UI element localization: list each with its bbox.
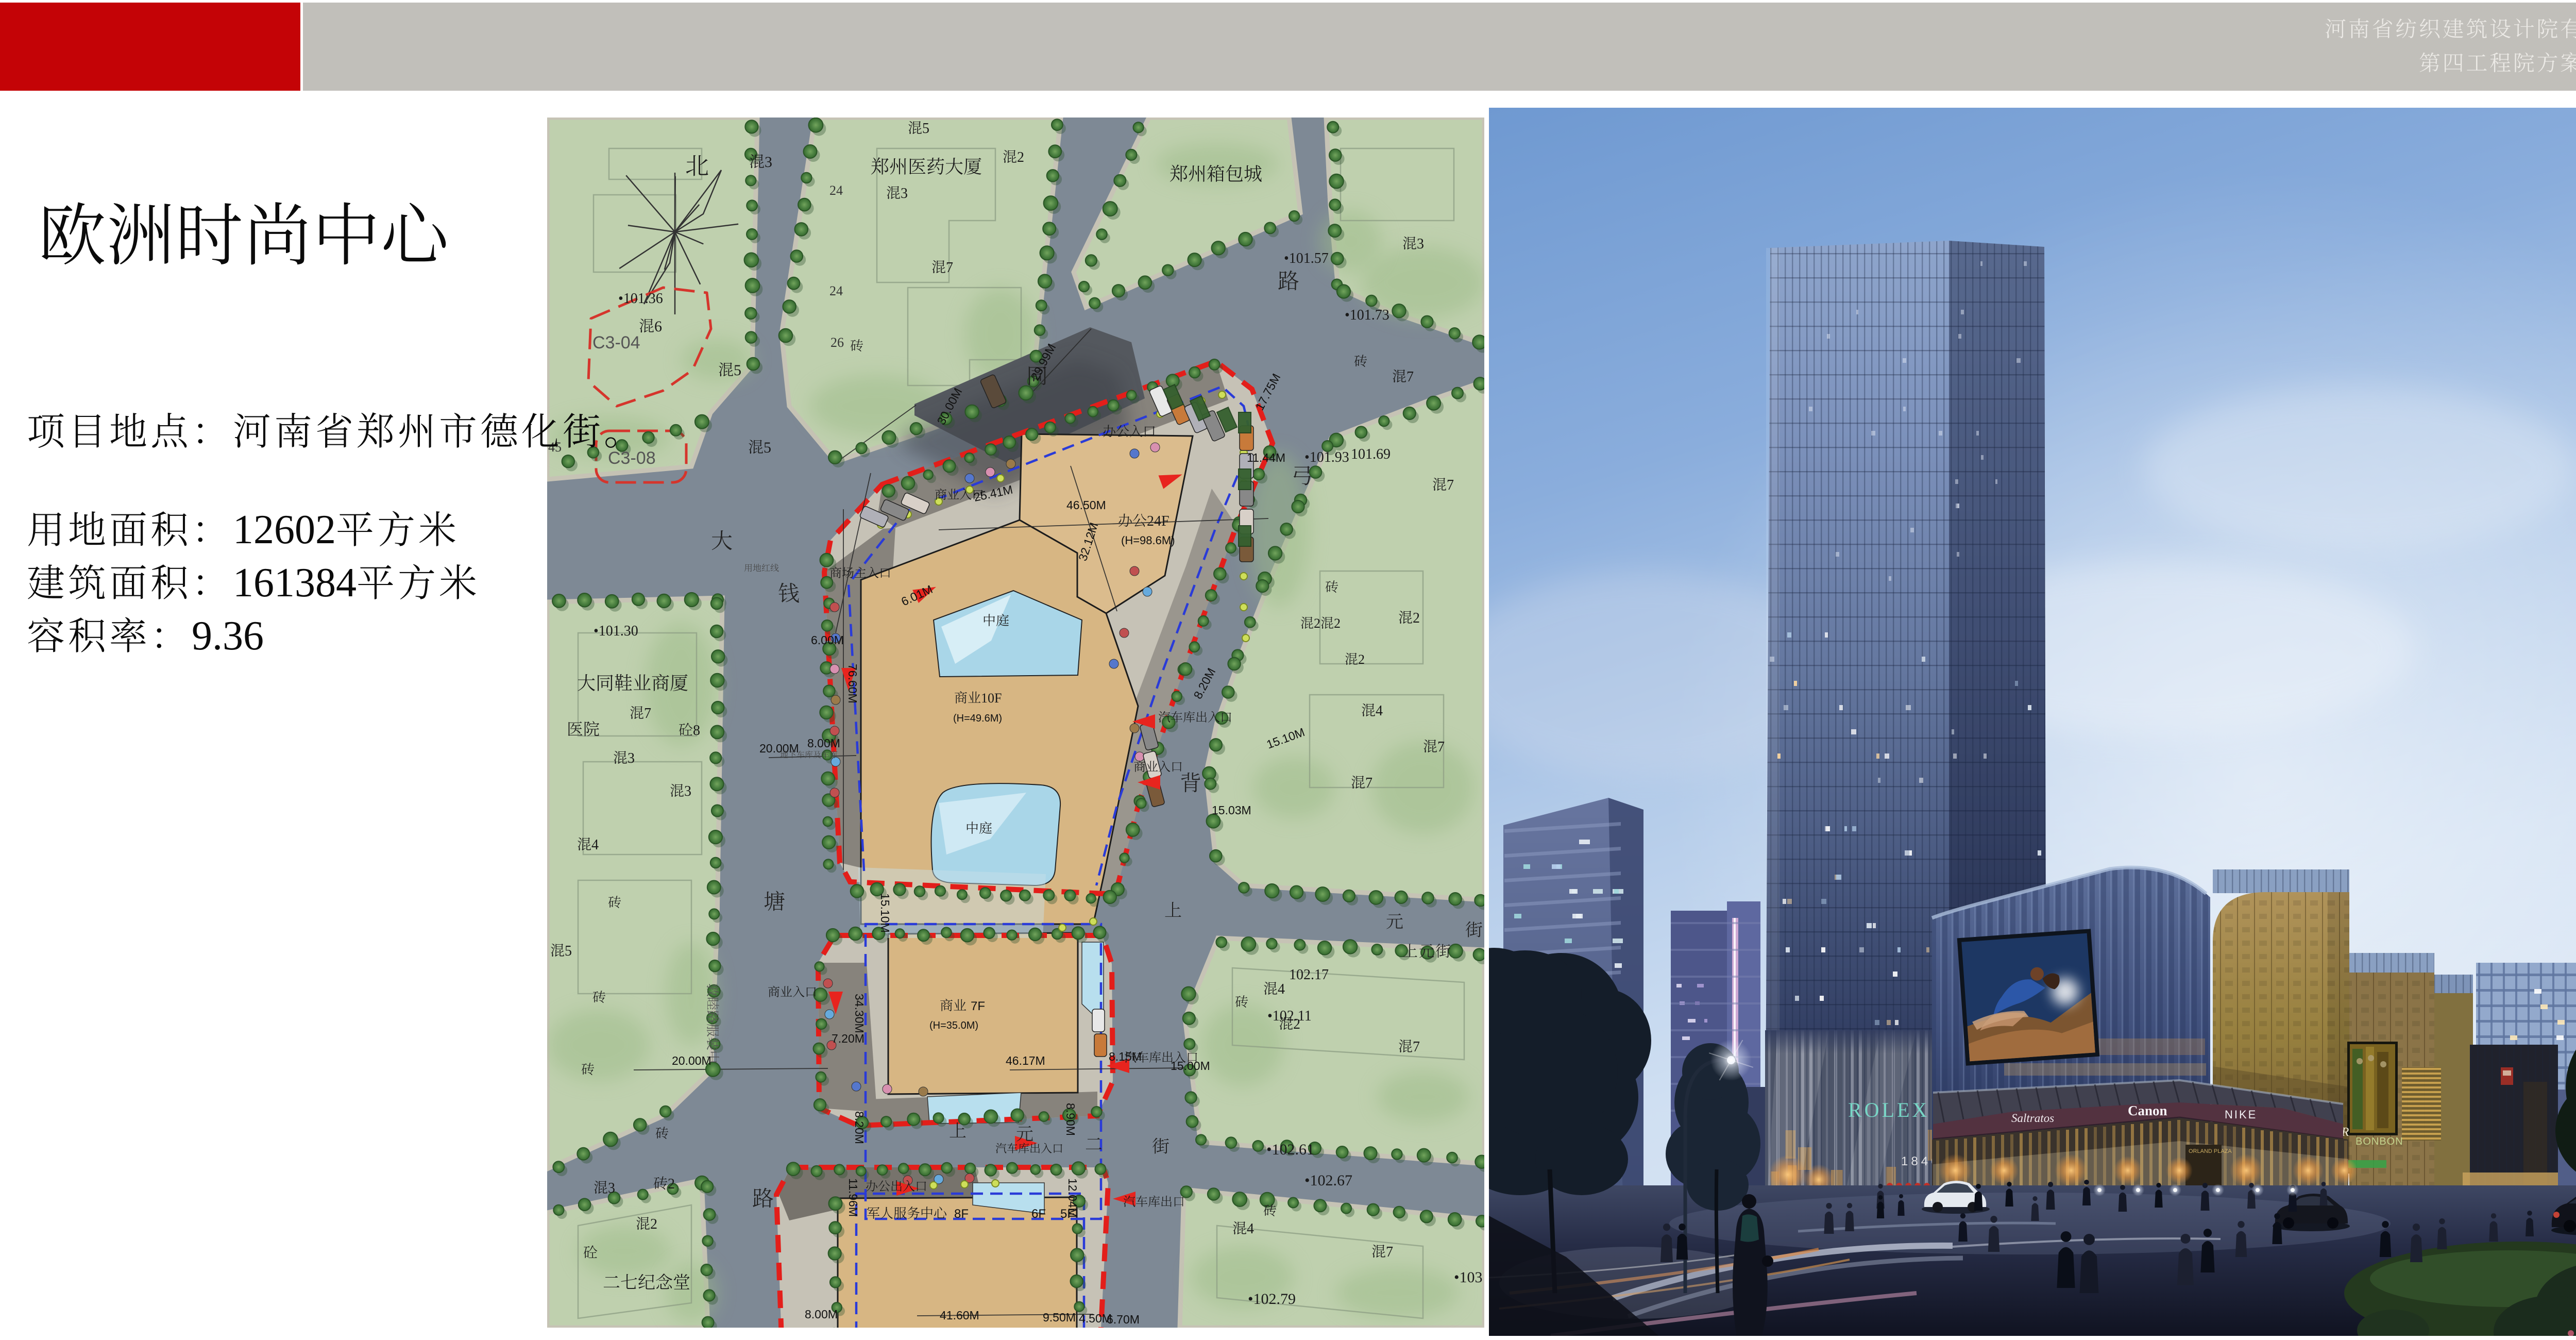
svg-text:12602: 12602 bbox=[233, 507, 336, 552]
svg-text:161384: 161384 bbox=[233, 560, 357, 606]
svg-text:9.36: 9.36 bbox=[192, 613, 264, 659]
